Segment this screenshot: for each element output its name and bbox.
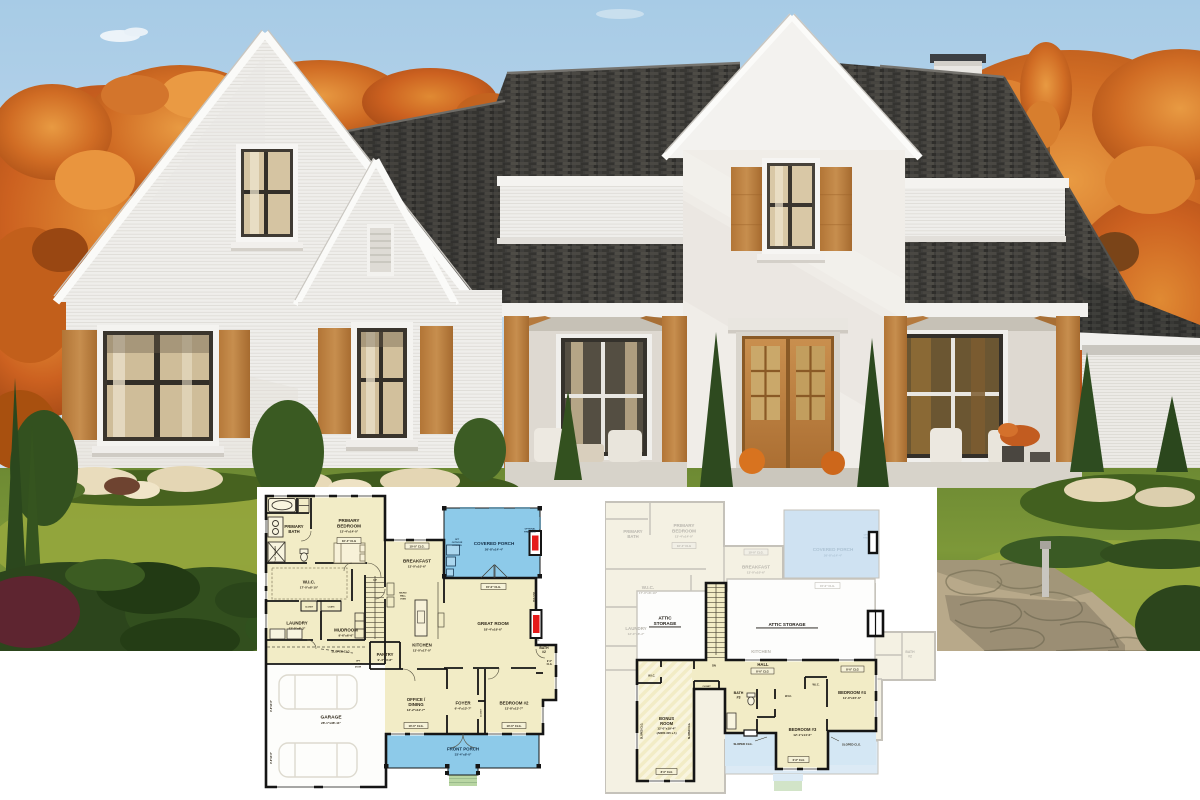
svg-text:ATTIC STORAGE: ATTIC STORAGE	[768, 622, 805, 627]
svg-text:8'-0" CLG: 8'-0" CLG	[756, 670, 769, 674]
svg-text:8'-0" CLG: 8'-0" CLG	[661, 770, 673, 774]
svg-text:CLOSET: CLOSET	[702, 686, 711, 688]
svg-text:12'-0"x19'-4": 12'-0"x19'-4"	[657, 727, 676, 731]
svg-text:W.I.C.: W.I.C.	[785, 694, 792, 698]
svg-text:11'-0"x15'-6": 11'-0"x15'-6"	[843, 696, 862, 700]
svg-text:9'-4"x4'-8": 9'-4"x4'-8"	[377, 658, 393, 662]
svg-text:MUDROOM: MUDROOM	[334, 628, 358, 633]
svg-text:SLOPED CLG.: SLOPED CLG.	[332, 650, 351, 654]
svg-text:9'-8"x8'-0": 9'-8"x8'-0"	[270, 752, 273, 764]
svg-text:STORAGE: STORAGE	[654, 621, 677, 626]
svg-text:OUTDOOR: OUTDOOR	[452, 542, 463, 544]
svg-text:BEDROOM #4: BEDROOM #4	[838, 690, 866, 695]
svg-text:16'-4" CLG: 16'-4" CLG	[342, 539, 356, 543]
svg-text:ATTIC: ATTIC	[658, 616, 672, 621]
svg-text:12'-1"x14'-6": 12'-1"x14'-6"	[793, 733, 812, 737]
svg-text:SLOPED CLG.: SLOPED CLG.	[842, 743, 861, 747]
svg-text:13'-0"x17'-0": 13'-0"x17'-0"	[413, 649, 432, 653]
svg-text:COVERED PORCH: COVERED PORCH	[813, 547, 854, 552]
svg-text:FOYER: FOYER	[455, 701, 471, 706]
svg-text:6'-4"x13'-7": 6'-4"x13'-7"	[455, 707, 472, 711]
svg-text:OPTIONAL: OPTIONAL	[525, 528, 536, 531]
svg-text:GARAGE: GARAGE	[320, 715, 342, 721]
svg-text:10'-0" CLG.: 10'-0" CLG.	[408, 724, 423, 728]
svg-text:17'-0"x8'-10": 17'-0"x8'-10"	[300, 586, 319, 590]
svg-text:SLOPED CLG.: SLOPED CLG.	[734, 742, 753, 746]
svg-text:COSTCO: COSTCO	[354, 664, 363, 666]
svg-text:#3: #3	[737, 696, 741, 700]
svg-text:#2: #2	[542, 650, 546, 654]
svg-text:FRONT PORCH: FRONT PORCH	[447, 747, 479, 752]
svg-text:PANTRY: PANTRY	[377, 652, 394, 657]
svg-text:PRIMARY: PRIMARY	[338, 518, 359, 523]
svg-text:CLOSET: CLOSET	[305, 607, 314, 609]
svg-text:OPT: OPT	[455, 539, 460, 541]
svg-text:GREAT ROOM: GREAT ROOM	[477, 621, 508, 626]
svg-text:W.I.C.: W.I.C.	[642, 585, 655, 590]
svg-text:BATH: BATH	[627, 534, 638, 539]
svg-text:26'-8"x14'-4": 26'-8"x14'-4"	[485, 548, 504, 552]
svg-text:CLG.: CLG.	[547, 663, 553, 666]
svg-text:10'-0" CLG.: 10'-0" CLG.	[748, 551, 763, 555]
svg-text:13'-0"x10'-6": 13'-0"x10'-6"	[747, 571, 766, 575]
svg-text:13'-8"x13'-7": 13'-8"x13'-7"	[505, 707, 524, 711]
svg-text:SLOPED CLG.: SLOPED CLG.	[641, 723, 644, 740]
svg-text:BEDROOM: BEDROOM	[672, 529, 696, 534]
svg-text:BREAKFAST: BREAKFAST	[742, 565, 770, 570]
svg-text:12'-2"x12'-7": 12'-2"x12'-7"	[407, 708, 426, 712]
svg-text:BATH: BATH	[288, 529, 299, 534]
svg-text:COVERED PORCH: COVERED PORCH	[474, 541, 515, 546]
svg-text:WALL: WALL	[400, 595, 407, 598]
svg-text:32"x60" SHOWER: 32"x60" SHOWER	[275, 546, 277, 564]
svg-text:KITCHEN: KITCHEN	[412, 643, 432, 648]
svg-text:DINING: DINING	[408, 702, 424, 707]
svg-text:UP: UP	[373, 578, 377, 582]
svg-text:DN: DN	[712, 664, 716, 668]
svg-text:15'-0" CLG.: 15'-0" CLG.	[486, 585, 501, 589]
svg-text:DOOR: DOOR	[355, 667, 362, 669]
svg-text:BUILT-INS: BUILT-INS	[534, 591, 536, 602]
svg-text:PRIMARY: PRIMARY	[673, 523, 694, 528]
svg-text:BATH: BATH	[905, 650, 915, 654]
svg-text:18'-4"x19'-6": 18'-4"x19'-6"	[484, 628, 503, 632]
svg-text:HALL: HALL	[757, 662, 769, 667]
svg-text:9'-6"x6'-6": 9'-6"x6'-6"	[338, 634, 354, 638]
svg-text:BEDROOM: BEDROOM	[337, 524, 361, 529]
svg-text:6'-6" CLG: 6'-6" CLG	[793, 758, 805, 762]
svg-text:28'-1"x38'-11": 28'-1"x38'-11"	[321, 721, 342, 725]
svg-text:(ADDS 315 s.f.): (ADDS 315 s.f.)	[657, 731, 677, 735]
svg-text:BEDROOM #3: BEDROOM #3	[789, 727, 817, 732]
svg-text:13'-4"x14'-0": 13'-4"x14'-0"	[340, 530, 359, 534]
svg-text:17'-0"x8'-10": 17'-0"x8'-10"	[639, 591, 658, 595]
svg-text:W.I.C.: W.I.C.	[648, 674, 655, 678]
svg-text:SLOPED CLG.: SLOPED CLG.	[688, 723, 691, 740]
svg-text:KITCHEN: KITCHEN	[452, 545, 462, 547]
svg-text:BEDROOM #2: BEDROOM #2	[499, 701, 529, 706]
svg-text:W.I.C.: W.I.C.	[303, 580, 316, 585]
svg-text:LAUNDRY: LAUNDRY	[286, 621, 307, 626]
svg-text:BATH: BATH	[734, 691, 744, 695]
svg-text:CL.: CL.	[536, 640, 540, 642]
svg-text:12'-0"x8'-2": 12'-0"x8'-2"	[289, 627, 306, 631]
svg-text:15'-0" CLG.: 15'-0" CLG.	[820, 584, 835, 588]
svg-text:LAUNDRY: LAUNDRY	[625, 626, 646, 631]
svg-text:#2: #2	[908, 655, 912, 659]
svg-text:13'-4"x14'-0": 13'-4"x14'-0"	[675, 535, 694, 539]
svg-text:KITCHEN: KITCHEN	[751, 649, 771, 654]
svg-text:MICRO/: MICRO/	[399, 593, 407, 595]
svg-text:12'-0"x8'-2": 12'-0"x8'-2"	[628, 632, 645, 636]
svg-text:FIREPLACE: FIREPLACE	[524, 531, 536, 534]
svg-text:BREAKFAST: BREAKFAST	[403, 559, 431, 564]
svg-text:8'-0" CLG: 8'-0" CLG	[846, 668, 859, 672]
svg-text:26'-8"x14'-4": 26'-8"x14'-4"	[824, 554, 843, 558]
svg-text:10'-0" CLG.: 10'-0" CLG.	[409, 545, 424, 549]
svg-text:CLOSET: CLOSET	[481, 708, 483, 717]
svg-text:33'-4"x8'-0": 33'-4"x8'-0"	[455, 753, 472, 757]
svg-text:COATS: COATS	[328, 606, 336, 609]
svg-text:OVEN: OVEN	[400, 599, 406, 601]
svg-text:9'-8"x8'-0": 9'-8"x8'-0"	[270, 700, 273, 712]
svg-text:ROOM: ROOM	[660, 721, 674, 726]
svg-text:13'-0"x10'-6": 13'-0"x10'-6"	[408, 565, 427, 569]
svg-text:W.I.C.: W.I.C.	[812, 683, 819, 687]
svg-text:16'-4" CLG: 16'-4" CLG	[677, 544, 691, 548]
svg-text:10'-0" CLG.: 10'-0" CLG.	[506, 724, 521, 728]
svg-text:OPT: OPT	[356, 661, 361, 663]
